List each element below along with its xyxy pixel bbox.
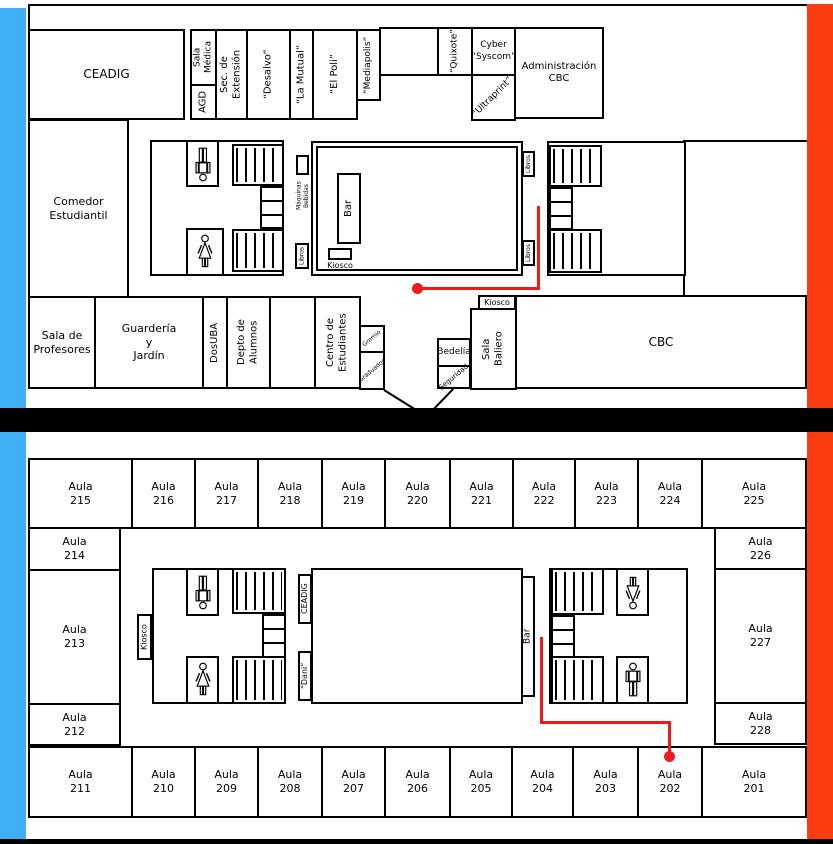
room-aula-226: Aula 226 (714, 527, 807, 570)
womens-wc-icon (195, 233, 215, 271)
room-aula-209: Aula 209 (194, 746, 259, 818)
mens-wc-room (616, 656, 649, 704)
room-cyber-syscom: Cyber “Syscom” (471, 27, 516, 76)
route-line (417, 287, 540, 290)
room-agd: AGD (190, 84, 217, 120)
left-blue-bar-lower (0, 432, 26, 839)
staircase (232, 656, 286, 704)
stand-kiosco-label: Kiosco (314, 260, 366, 271)
mens-wc-icon (193, 573, 213, 611)
womens-wc-room (186, 656, 219, 704)
route-start-dot (412, 283, 423, 294)
route-line (668, 721, 671, 755)
room-ceadig: CEADIG (28, 29, 185, 120)
room-aula-216: Aula 216 (131, 458, 196, 529)
room-aula-212: Aula 212 (28, 703, 121, 746)
room-aula-219: Aula 219 (321, 458, 386, 529)
room-sala-baliero: Sala Baliero (470, 308, 517, 390)
room-aula-222: Aula 222 (512, 458, 576, 529)
room-depto-alumnos: Depto de Alumnos (226, 296, 271, 389)
stand-bar: Bar (337, 173, 361, 244)
right-orange-bar-upper (807, 4, 833, 408)
room-aula-211: Aula 211 (28, 746, 133, 818)
womens-wc-room (186, 228, 224, 276)
room-aula-223: Aula 223 (574, 458, 639, 529)
room-aula-207: Aula 207 (321, 746, 386, 818)
room-el-poli: “El Poli” (312, 29, 358, 120)
room-aula-205: Aula 205 (449, 746, 513, 818)
right-orange-bar-lower (807, 432, 833, 839)
room-ultraprint-label: “Ultraprint” (471, 75, 516, 120)
stand-kiosco-box (328, 248, 352, 260)
room-aula-203: Aula 203 (572, 746, 639, 818)
stair-landing (551, 615, 575, 658)
room-aula-206: Aula 206 (384, 746, 451, 818)
stand-ceadig-floor2: CEADIG (298, 574, 312, 624)
stair-landing (260, 186, 284, 229)
room-desalvo: “Desalvo” (246, 29, 291, 120)
room-aula-224: Aula 224 (637, 458, 703, 529)
room-ultraprint: “Ultraprint” (471, 74, 516, 121)
staircase (232, 568, 286, 614)
mens-wc-room (186, 568, 219, 616)
room-sec-extension: Sec. de Extensión (215, 29, 248, 120)
mens-wc-icon (193, 145, 213, 183)
staircase (551, 656, 604, 704)
route-line (540, 721, 671, 724)
mens-wc-room (186, 140, 219, 187)
room-aula-201: Aula 201 (701, 746, 807, 818)
room-aula-227: Aula 227 (714, 568, 807, 704)
room-aula-208: Aula 208 (257, 746, 323, 818)
stand-kiosco-floor2: Kiosco (137, 614, 152, 660)
room-aula-225: Aula 225 (701, 458, 807, 529)
stand-bar-floor2: Bar (521, 576, 535, 697)
room-aula-218: Aula 218 (257, 458, 323, 529)
room-gremio-label: Gremio (361, 329, 383, 349)
stand-libros: Libros (295, 243, 309, 269)
room-aula-220: Aula 220 (384, 458, 451, 529)
room-aula-221: Aula 221 (449, 458, 514, 529)
room-aula-210: Aula 210 (131, 746, 196, 818)
womens-wc-icon (193, 661, 213, 699)
room-graduados: Graduados (359, 351, 385, 390)
staircase (232, 144, 284, 186)
room-quixote: “Quixote” (437, 27, 473, 76)
room-cbc: CBC (515, 295, 807, 389)
room-dosuba: DosUBA (202, 296, 228, 389)
stair-landing (262, 614, 286, 658)
staircase (551, 568, 604, 615)
route-line (540, 637, 543, 724)
room-aula-214: Aula 214 (28, 527, 121, 571)
room-mediapolis: “Mediapolis” (356, 29, 381, 101)
left-blue-bar-upper (0, 8, 26, 408)
route-line (537, 206, 540, 290)
room-gremio: Gremio (359, 325, 385, 353)
staircase (232, 229, 284, 272)
route-end-dot (664, 751, 675, 762)
floor-plan-map: CEADIG Sala Médica AGD Sec. de Extensión… (0, 0, 833, 844)
room-guarderia-jardin: Guardería y Jardín (94, 296, 204, 389)
room-sala-medica: Sala Médica (190, 29, 217, 86)
womens-wc-icon (623, 573, 643, 611)
wall-top-right-h (683, 140, 807, 142)
room-unlabeled-a (379, 27, 439, 76)
room-aula-204: Aula 204 (511, 746, 574, 818)
mens-wc-icon (623, 661, 643, 699)
room-seguridad-label: Seguridad (438, 362, 471, 392)
stair-landing (549, 187, 573, 230)
stand-maquinas-box (296, 155, 309, 175)
stand-dani: “Dani” (298, 651, 312, 701)
bottom-band (0, 839, 833, 844)
staircase (549, 145, 602, 187)
room-la-mutual: “La Mutual” (289, 29, 314, 120)
stand-libros: Libros (522, 151, 535, 177)
room-centro-estudiantes: Centro de Estudiantes (314, 296, 361, 389)
room-bedelia: Bedelía (437, 338, 471, 367)
room-seguridad: Seguridad (437, 365, 471, 389)
outer-wall-left-stub (28, 4, 30, 31)
room-graduados-label: Graduados (357, 357, 387, 384)
room-unlabeled-b (269, 296, 316, 389)
outer-wall-top (28, 4, 807, 6)
room-sala-profesores: Sala de Profesores (28, 296, 96, 389)
stand-libros: Libros (522, 240, 535, 266)
room-aula-213: Aula 213 (28, 569, 121, 705)
room-administracion-cbc: Administración CBC (514, 27, 604, 119)
room-aula-228: Aula 228 (714, 702, 807, 745)
staircase (549, 229, 602, 273)
room-aula-217: Aula 217 (194, 458, 259, 529)
room-comedor-estudiantil: Comedor Estudiantil (28, 119, 129, 298)
womens-wc-room (616, 568, 649, 616)
room-aula-215: Aula 215 (28, 458, 133, 529)
central-hall-floor2 (311, 568, 523, 704)
